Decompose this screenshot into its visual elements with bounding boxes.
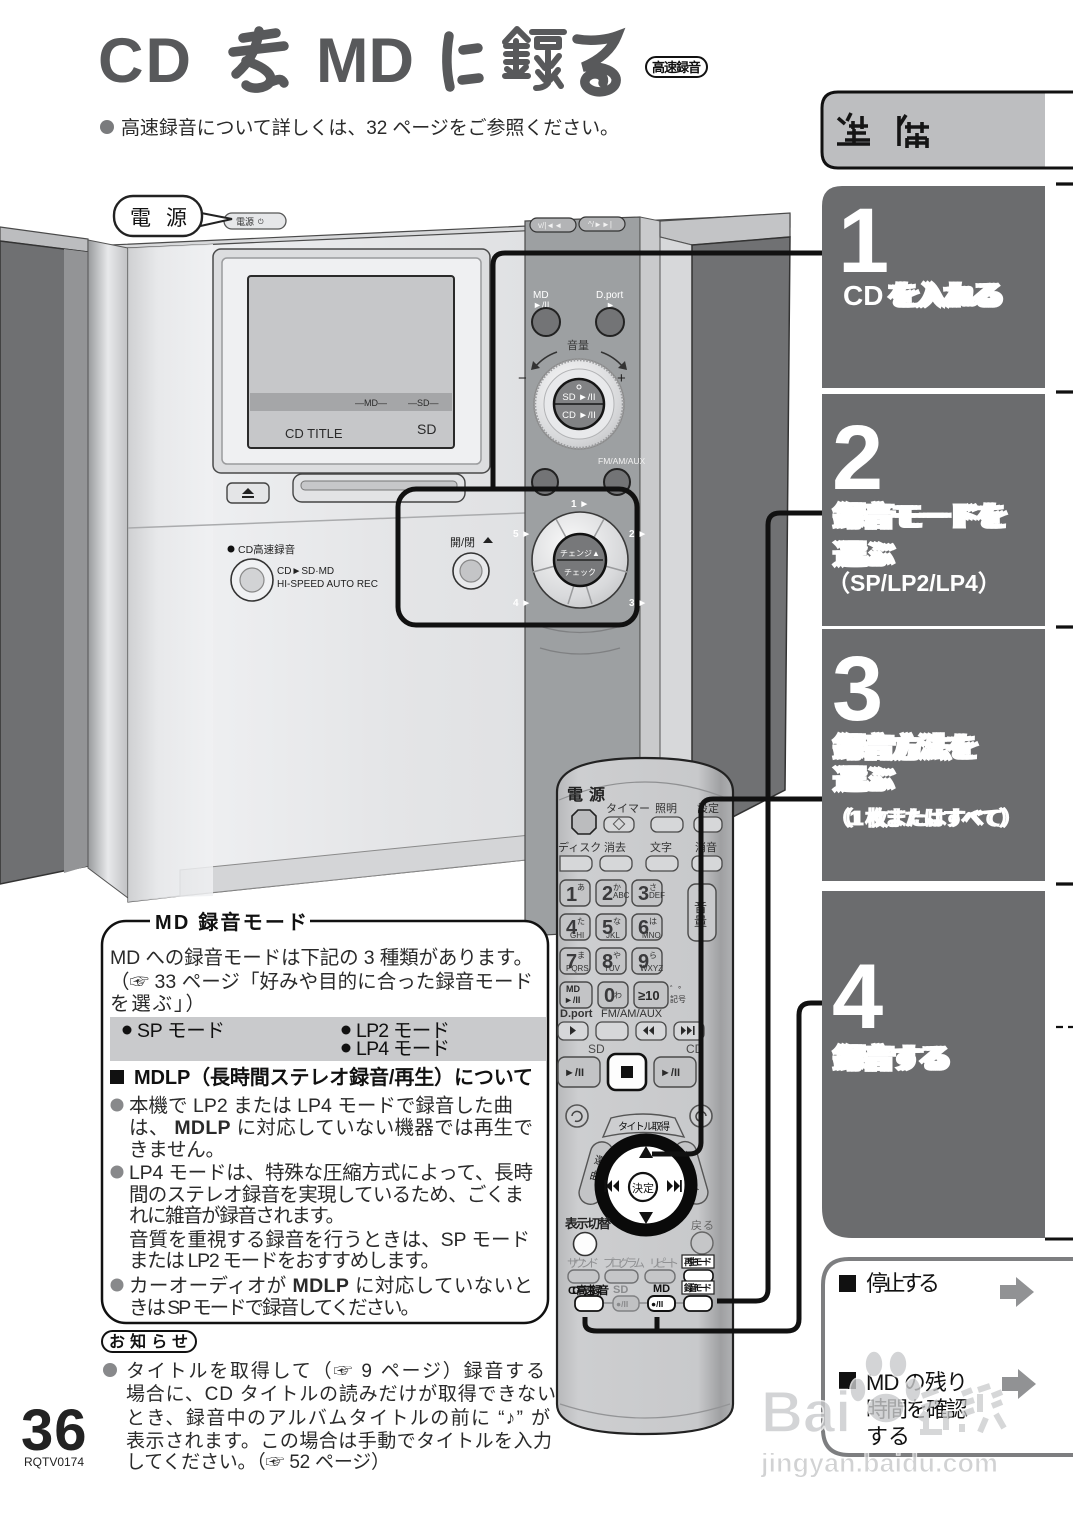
svg-text:ディスク: ディスク [558, 840, 601, 854]
svg-text:（☞ 33 ページ「好みや目的に合った録音モード: （☞ 33 ページ「好みや目的に合った録音モード [110, 971, 533, 993]
svg-text:2: 2 [832, 407, 883, 509]
svg-text:−: − [518, 370, 527, 387]
svg-text:MNO: MNO [642, 931, 661, 940]
svg-text:⏻: ⏻ [258, 218, 264, 226]
svg-text:戻る: 戻る [691, 1219, 714, 1232]
svg-text:4: 4 [832, 946, 883, 1048]
svg-text:音量: 音量 [567, 338, 589, 352]
svg-text:再生モード: 再生モード [684, 1256, 712, 1267]
svg-text:わ: わ [614, 991, 622, 1000]
svg-text:●/II: ●/II [651, 1299, 663, 1309]
svg-text:LP4 モードは、特殊な圧縮方式によって、長時: LP4 モードは、特殊な圧縮方式によって、長時 [129, 1162, 533, 1184]
svg-text:゛°: ゛° [670, 985, 681, 994]
svg-text:場合に、CD タイトルの読みだけが取得できない: 場合に、CD タイトルの読みだけが取得できない [126, 1383, 556, 1405]
svg-text:36: 36 [21, 1398, 88, 1463]
svg-text:は: は [649, 917, 657, 926]
svg-text:FM/AM/AUX: FM/AM/AUX [598, 456, 646, 466]
svg-text:高速録音について詳しくは、32 ページをご参照ください。: 高速録音について詳しくは、32 ページをご参照ください。 [121, 117, 619, 139]
svg-text:D.port: D.port [560, 1008, 593, 1020]
svg-text:4 ►: 4 ► [513, 598, 531, 609]
svg-text:MD 録音モード: MD 録音モード [155, 910, 307, 934]
svg-text:►/II: ►/II [660, 1067, 680, 1079]
svg-text:照明: 照明 [655, 802, 677, 815]
svg-text:►/II: ►/II [564, 1067, 584, 1079]
svg-text:あ: あ [577, 883, 585, 892]
svg-text:5 ►: 5 ► [513, 529, 531, 540]
svg-text:SD ►/II: SD ►/II [562, 392, 595, 403]
svg-text:v/|◄◄: v/|◄◄ [538, 221, 562, 230]
svg-text:Bai: Bai [761, 1380, 851, 1445]
svg-text:MD: MD [653, 1283, 670, 1295]
svg-text:3: 3 [638, 883, 649, 905]
svg-text:CD高速録音: CD高速録音 [238, 543, 295, 556]
svg-text:CD►SD·MD: CD►SD·MD [277, 566, 334, 577]
svg-text:タイトルを取得して（☞ 9 ページ）録音する: タイトルを取得して（☞ 9 ページ）録音する [126, 1360, 545, 1382]
svg-text:た: た [577, 917, 585, 926]
svg-text:録音モード: 録音モード [684, 1282, 712, 1293]
svg-text:間のステレオ録音を実現しているため、ごくま: 間のステレオ録音を実現しているため、ごくま [129, 1184, 524, 1206]
svg-text:タイトル取得: タイトル取得 [618, 1121, 670, 1133]
svg-text:電源: 電源 [236, 217, 254, 227]
svg-text:プログラム: プログラム [603, 1256, 645, 1270]
svg-text:カーオーディオが MDLP に対応していないと: カーオーディオが MDLP に対応していないと [129, 1275, 533, 1297]
svg-text:選ぶ: 選ぶ [840, 539, 896, 570]
svg-text:CD ►/II: CD ►/II [562, 410, 596, 421]
svg-text:SP モード: SP モード [137, 1020, 225, 1042]
svg-text:MD: MD [316, 26, 414, 96]
svg-text:►/II: ►/II [564, 995, 580, 1005]
svg-text:GHI: GHI [570, 931, 584, 940]
svg-text:を入れる: を入れる [894, 280, 1006, 311]
svg-text:きは SP モードで録音してください。: きは SP モードで録音してください。 [129, 1297, 420, 1319]
svg-text:FM/AM/AUX: FM/AM/AUX [601, 1008, 663, 1020]
svg-text:とき、録音中のアルバムタイトルの前に “♪” が: とき、録音中のアルバムタイトルの前に “♪” が [126, 1407, 550, 1429]
svg-text:きません。: きません。 [129, 1139, 225, 1161]
svg-text:れに雑音が録音されます。: れに雑音が録音されます。 [129, 1205, 345, 1227]
svg-text:MD: MD [566, 984, 580, 994]
svg-text:≥10: ≥10 [638, 988, 660, 1003]
svg-text:CD高速録音: CD高速録音 [568, 1283, 609, 1297]
svg-text:録音する: 録音する [840, 1042, 953, 1074]
svg-text:チェンジ▲: チェンジ▲ [560, 549, 600, 558]
svg-text:してください。（☞ 52 ページ）: してください。（☞ 52 ページ） [126, 1451, 390, 1473]
svg-text:LP4 モード: LP4 モード [356, 1038, 450, 1060]
svg-text:^/►►|: ^/►►| [588, 220, 612, 229]
svg-text:本機で LP2 または LP4 モードで録音した曲: 本機で LP2 または LP4 モードで録音した曲 [129, 1095, 513, 1117]
svg-text:1 ►: 1 ► [571, 499, 589, 510]
svg-text:文字: 文字 [650, 840, 672, 854]
svg-text:PQRS: PQRS [566, 964, 589, 973]
svg-text:CD: CD [843, 280, 883, 311]
svg-text:開/閉: 開/閉 [450, 536, 475, 549]
svg-text:ま: ま [577, 951, 585, 960]
svg-text:2: 2 [602, 883, 613, 905]
svg-text:ら: ら [649, 951, 657, 960]
svg-text:または LP2 モードをおすすめします。: または LP2 モードをおすすめします。 [129, 1250, 440, 1272]
svg-text:—SD—: —SD— [408, 398, 439, 408]
svg-text:jingyan.baidu.com: jingyan.baidu.com [760, 1448, 998, 1478]
svg-text:SD: SD [588, 1042, 605, 1056]
svg-text:は、 MDLP に対応していない機器では再生で: は、 MDLP に対応していない機器では再生で [129, 1117, 533, 1139]
svg-text:表示切替: 表示切替 [564, 1216, 611, 1231]
svg-text:タイマー: タイマー [606, 802, 650, 815]
svg-text:記号: 記号 [670, 994, 686, 1004]
svg-text:RQTV0174: RQTV0174 [24, 1455, 84, 1469]
svg-text:WXYZ: WXYZ [640, 964, 663, 973]
svg-text:決定: 決定 [632, 1181, 654, 1195]
svg-text:CD: CD [98, 26, 193, 96]
svg-text:する: する [866, 1424, 910, 1449]
svg-text:MD への録音モードは下記の 3 種類があります。: MD への録音モードは下記の 3 種類があります。 [110, 947, 533, 969]
svg-text:MDLP（長時間ステレオ録音/再生）について: MDLP（長時間ステレオ録音/再生）について [134, 1065, 533, 1089]
svg-text:（SP/LP2/LP4）: （SP/LP2/LP4） [827, 570, 1001, 596]
svg-text:CD TITLE: CD TITLE [285, 426, 343, 441]
svg-text:JKL: JKL [606, 931, 620, 940]
svg-text:●/II: ●/II [616, 1299, 628, 1309]
svg-text:リピート: リピート [649, 1257, 679, 1270]
svg-text:録音モードを: 録音モードを [840, 500, 1010, 532]
svg-text:—MD—: —MD— [355, 398, 387, 408]
svg-text:な: な [613, 917, 621, 926]
svg-text:ABC: ABC [613, 891, 630, 900]
svg-text:を選ぶ」）: を選ぶ」） [110, 993, 205, 1015]
svg-text:音質を重視する録音を行うときは、SP モード: 音質を重視する録音を行うときは、SP モード [129, 1229, 530, 1251]
svg-text:1: 1 [838, 190, 889, 292]
svg-text:HI-SPEED AUTO REC: HI-SPEED AUTO REC [277, 579, 378, 590]
svg-text:表示されます。この場合は手動でタイトルを入力: 表示されます。この場合は手動でタイトルを入力 [126, 1430, 552, 1452]
svg-text:サウンド: サウンド [567, 1257, 599, 1270]
svg-text:消去: 消去 [604, 840, 626, 854]
svg-text:TUV: TUV [604, 964, 621, 973]
svg-text:SD: SD [613, 1284, 628, 1296]
svg-text:（1 枚またはすべて）: （1 枚またはすべて） [833, 806, 1022, 830]
svg-text:録音方法を: 録音方法を [840, 731, 981, 763]
svg-text:1: 1 [566, 884, 577, 906]
svg-text:高速録音: 高速録音 [652, 60, 701, 75]
svg-text:停止する: 停止する [866, 1271, 940, 1296]
svg-text:チェック: チェック [564, 568, 596, 577]
svg-text:SD: SD [417, 421, 436, 437]
svg-text:選ぶ: 選ぶ [840, 764, 896, 795]
svg-text:DEF: DEF [649, 891, 665, 900]
svg-text:や: や [613, 951, 621, 960]
svg-text:消音: 消音 [695, 840, 717, 854]
svg-text:3: 3 [832, 638, 883, 740]
